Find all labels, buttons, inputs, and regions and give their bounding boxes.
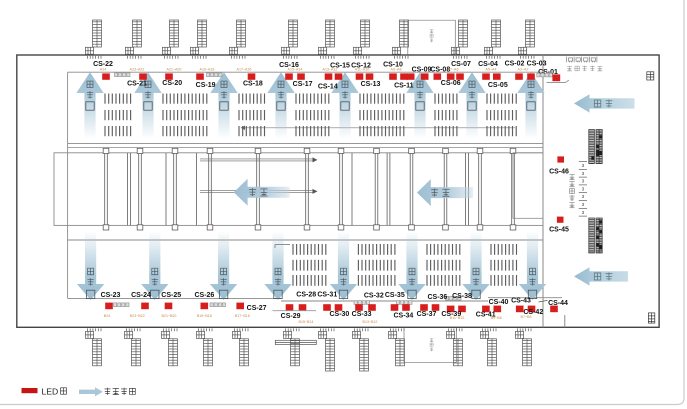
svg-text:A3~A2: A3~A2	[518, 67, 529, 71]
svg-text:CS-17: CS-17	[293, 81, 313, 88]
svg-text:A24: A24	[100, 67, 106, 71]
svg-text:CS-35: CS-35	[385, 292, 405, 299]
svg-text:CS-06: CS-06	[441, 80, 461, 87]
svg-text:3: 3	[582, 194, 585, 199]
svg-text:A11~A10: A11~A10	[355, 67, 370, 71]
svg-text:CS-24: CS-24	[131, 292, 151, 299]
svg-text:B7~B6: B7~B6	[521, 315, 532, 319]
svg-text:3: 3	[582, 179, 585, 184]
svg-text:CS-40: CS-40	[489, 299, 509, 306]
svg-text:CS-45: CS-45	[549, 226, 569, 233]
svg-text:3: 3	[582, 163, 585, 168]
svg-text:CS-38: CS-38	[452, 293, 472, 300]
svg-text:3: 3	[582, 171, 585, 176]
svg-text:CS-36: CS-36	[427, 294, 447, 301]
svg-text:3: 3	[582, 186, 585, 191]
svg-text:A17~A16: A17~A16	[237, 67, 252, 71]
svg-text:CS-09: CS-09	[412, 67, 432, 74]
svg-text:CS-29: CS-29	[281, 313, 301, 320]
svg-text:3: 3	[582, 210, 585, 215]
svg-text:LED: LED	[42, 386, 59, 396]
svg-text:CS-14: CS-14	[318, 83, 338, 90]
svg-text:CS-27: CS-27	[247, 305, 267, 312]
svg-text:3: 3	[582, 202, 585, 207]
svg-text:CS-20: CS-20	[162, 80, 182, 87]
svg-text:CS-18: CS-18	[243, 80, 263, 87]
svg-text:B21~B20: B21~B20	[162, 314, 177, 318]
svg-text:B24: B24	[104, 314, 110, 318]
svg-text:CS-44: CS-44	[548, 300, 568, 307]
svg-text:B13~B12: B13~B12	[363, 320, 378, 324]
svg-text:CS-34: CS-34	[393, 313, 413, 320]
svg-text:CS-32: CS-32	[364, 292, 384, 299]
svg-text:CS-19: CS-19	[196, 82, 216, 89]
svg-text:B23~B22: B23~B22	[130, 314, 145, 318]
svg-text:CS-26: CS-26	[194, 292, 214, 299]
svg-text:A13~A12: A13~A12	[323, 67, 338, 71]
svg-text:B19~B18: B19~B18	[197, 314, 212, 318]
svg-text:A7~A6: A7~A6	[448, 67, 459, 71]
svg-text:A21~A20: A21~A20	[167, 67, 182, 71]
svg-text:B9~B8: B9~B8	[491, 316, 502, 320]
svg-text:A9~A8: A9~A8	[391, 67, 402, 71]
svg-text:A19~A18: A19~A18	[200, 67, 215, 71]
svg-text:B15~B14: B15~B14	[299, 320, 314, 324]
svg-text:B17~B16: B17~B16	[235, 314, 250, 318]
svg-text:CS-43: CS-43	[511, 298, 531, 305]
svg-text:A5~A4: A5~A4	[486, 67, 497, 71]
svg-text:A23~A22: A23~A22	[130, 67, 145, 71]
svg-text:A15~A14: A15~A14	[288, 67, 303, 71]
svg-text:CS-30: CS-30	[329, 311, 349, 318]
svg-text:CS-31: CS-31	[317, 292, 337, 299]
svg-text:CS-28: CS-28	[296, 292, 316, 299]
svg-text:CS-37: CS-37	[417, 311, 437, 318]
svg-text:CS-33: CS-33	[352, 311, 372, 318]
svg-text:CS-25: CS-25	[161, 292, 181, 299]
svg-text:CS-23: CS-23	[101, 292, 121, 299]
svg-text:B11~B10: B11~B10	[450, 316, 465, 320]
svg-text:CS-13: CS-13	[361, 81, 381, 88]
svg-text:CS-05: CS-05	[488, 82, 508, 89]
svg-text:CS-46: CS-46	[549, 168, 569, 175]
svg-text:CS-11: CS-11	[394, 83, 414, 90]
svg-text:CS-03: CS-03	[527, 60, 547, 67]
svg-text:CS-21: CS-21	[127, 80, 147, 87]
